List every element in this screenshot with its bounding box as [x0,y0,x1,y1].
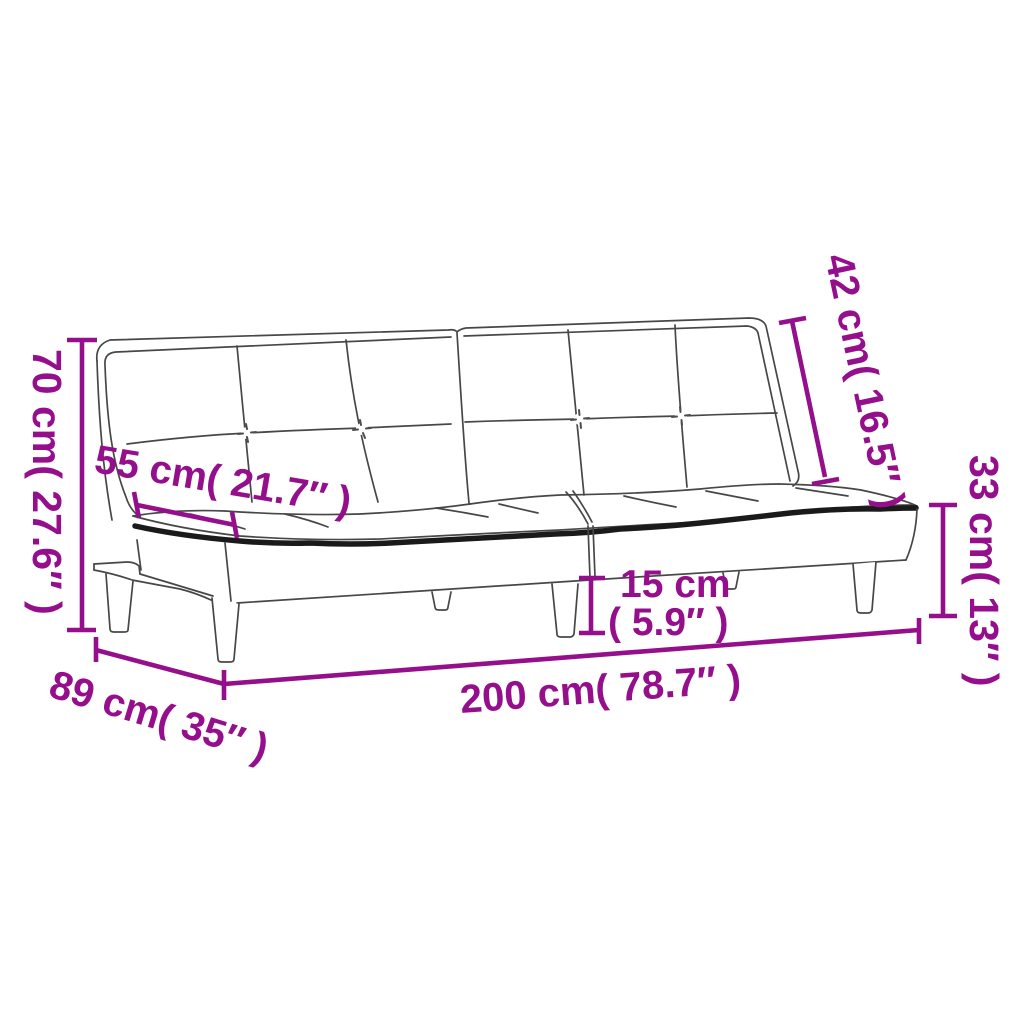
svg-text:15 cm: 15 cm [620,563,731,606]
svg-text:( 5.9″ ): ( 5.9″ ) [608,601,729,644]
svg-text:70 cm( 27.6″ ): 70 cm( 27.6″ ) [24,349,70,615]
svg-text:33 cm( 13″ ): 33 cm( 13″ ) [961,455,1007,687]
